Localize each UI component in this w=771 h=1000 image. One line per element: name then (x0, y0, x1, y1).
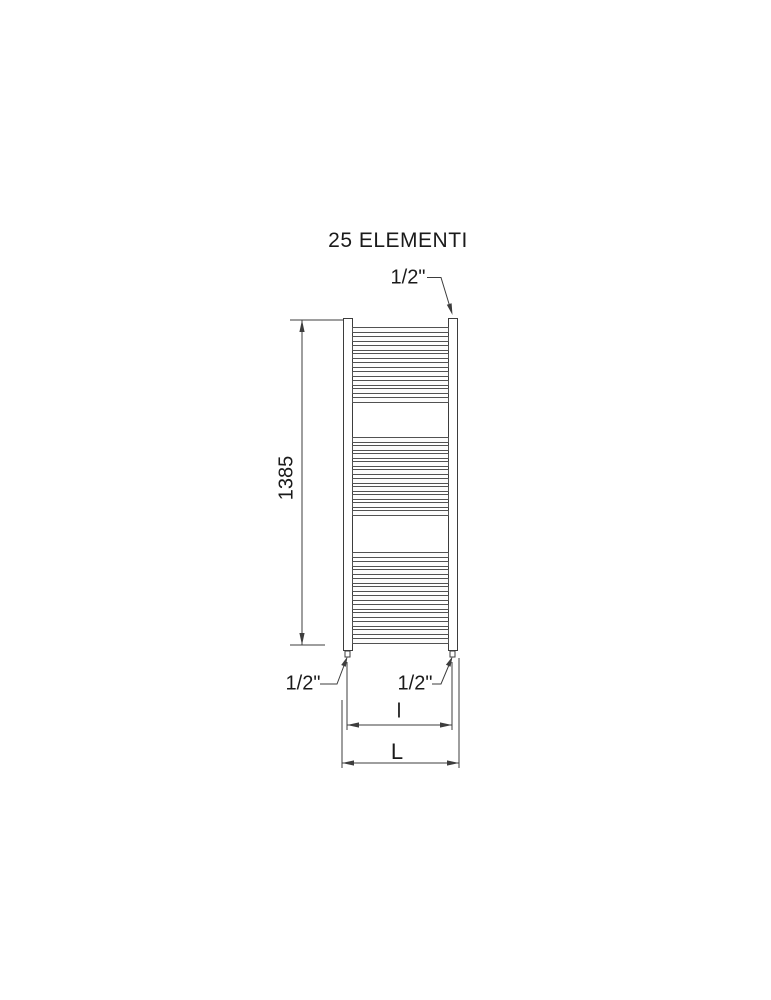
height-dimension-label: 1385 (276, 456, 299, 501)
bottom-left-stub (345, 651, 350, 657)
outer-width-arrow-left (342, 760, 354, 765)
bottom-right-connection-size-label: 1/2" (398, 673, 433, 696)
bottom-right-stub (450, 651, 455, 657)
height-arrow-up (299, 320, 304, 332)
dimension-linework (0, 0, 771, 1000)
bottom-left-connection-size-label: 1/2" (286, 673, 321, 696)
top-leader-arrow (447, 303, 453, 315)
bottom-left-connection-leader (320, 657, 348, 685)
inner-width-dimension-label: l (397, 701, 401, 724)
outer-width-arrow-right (447, 760, 459, 765)
technical-drawing-canvas: 25 ELEMENTI (0, 0, 771, 1000)
inner-width-arrow-right (440, 722, 452, 727)
top-connection-leader (427, 278, 453, 316)
inner-width-arrow-left (347, 722, 359, 727)
top-leader-line (427, 278, 452, 313)
bottom-left-leader-line (320, 659, 347, 684)
height-arrow-down (299, 633, 304, 645)
bottom-connection-stubs (345, 651, 455, 657)
bottom-right-connection-leader (432, 657, 453, 685)
top-connection-size-label: 1/2" (391, 267, 426, 290)
outer-width-dimension-label: L (391, 739, 403, 765)
